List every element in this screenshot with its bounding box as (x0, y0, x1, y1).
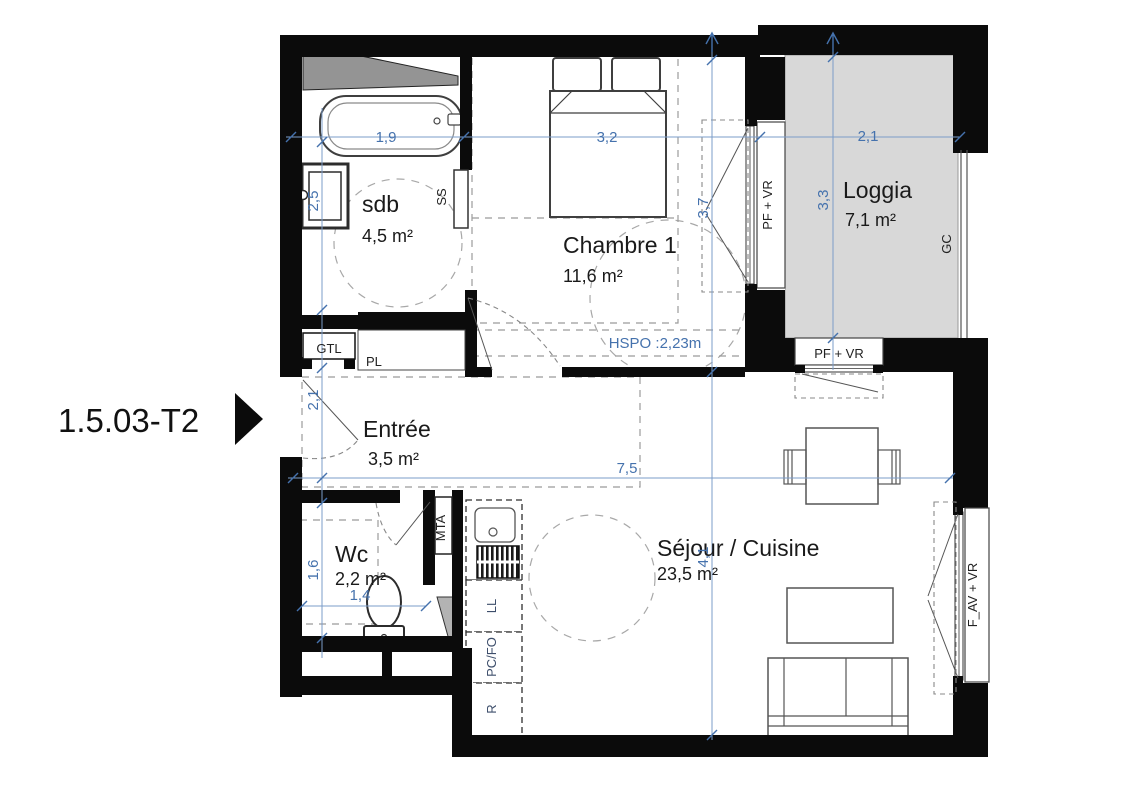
room-name-chambre: Chambre 1 (563, 232, 677, 258)
chambre-door (468, 298, 560, 370)
bathtub (320, 96, 462, 156)
floor-plan-canvas: 1.5.03-T2 sdb 4,5 m² Chambre 1 11,6 m² L… (0, 0, 1130, 800)
pillow (612, 58, 660, 91)
room-name-sejour: Séjour / Cuisine (657, 535, 819, 561)
window-sejour-label: F_AV + VR (965, 563, 980, 627)
room-area-chambre: 11,6 m² (563, 266, 623, 286)
window-loggia-label: PF + VR (814, 346, 864, 361)
fridge-label: R (484, 704, 499, 713)
chair (878, 450, 900, 484)
room-name-sdb: sdb (362, 191, 399, 217)
entree-zone-outline (302, 377, 640, 487)
dim-chambre-width: 3,2 (597, 129, 618, 146)
turning-circle-sejour (529, 515, 655, 641)
sofa (768, 658, 908, 738)
oven-label: PC/FO (484, 637, 499, 677)
guardrail-label: GC (939, 234, 954, 254)
window-chambre-label: PF + VR (760, 180, 775, 230)
dim-wc-wall: 1,6 (305, 560, 322, 581)
wc-door (376, 502, 430, 545)
dim-sejour-width: 7,5 (617, 460, 638, 477)
gtl-label: GTL (316, 341, 341, 356)
plan-marker-arrow (235, 393, 263, 445)
plan-title: 1.5.03-T2 (58, 402, 199, 439)
ss-label: SS (434, 188, 449, 206)
room-area-loggia: 7,1 m² (845, 210, 896, 230)
dim-chambre-depth: 3,7 (695, 198, 712, 219)
dim-sejour-depth: 4,1 (695, 547, 712, 568)
room-name-wc: Wc (335, 541, 368, 567)
washing-machine-label: LL (484, 599, 499, 613)
dim-loggia-width: 2,1 (858, 128, 879, 145)
room-area-sdb: 4,5 m² (362, 226, 413, 246)
bathtub-faucet (448, 114, 461, 125)
dim-loggia-depth: 3,3 (815, 190, 832, 211)
dim-entree-wall: 2,1 (305, 390, 322, 411)
facade-niche (392, 652, 458, 676)
mta-label: MTA (433, 514, 448, 541)
kitchen-appliances (466, 500, 522, 736)
sink-basin (475, 508, 515, 542)
room-name-entree: Entrée (363, 416, 431, 442)
sliding-door-panel (454, 170, 468, 228)
room-area-wc: 2,2 m² (335, 569, 386, 589)
coffee-table (787, 588, 893, 643)
floor-plan-drawing: 1.5.03-T2 sdb 4,5 m² Chambre 1 11,6 m² L… (0, 0, 1130, 800)
room-area-entree: 3,5 m² (368, 449, 419, 469)
dim-hspo-note: HSPO :2,23m (609, 335, 702, 352)
bathtub-drain (434, 118, 440, 124)
room-name-loggia: Loggia (843, 177, 912, 203)
dim-sdb-width: 1,9 (376, 129, 397, 146)
pl-label: PL (366, 354, 382, 369)
dim-wc-width: 1,4 (350, 587, 371, 604)
pillow (553, 58, 601, 91)
dim-bath-wall: 2,5 (305, 191, 322, 212)
dining-set (784, 428, 900, 504)
loggia-guardrail (961, 150, 967, 338)
chair (784, 450, 806, 484)
dining-table (806, 428, 878, 504)
facade-niche (302, 652, 382, 676)
